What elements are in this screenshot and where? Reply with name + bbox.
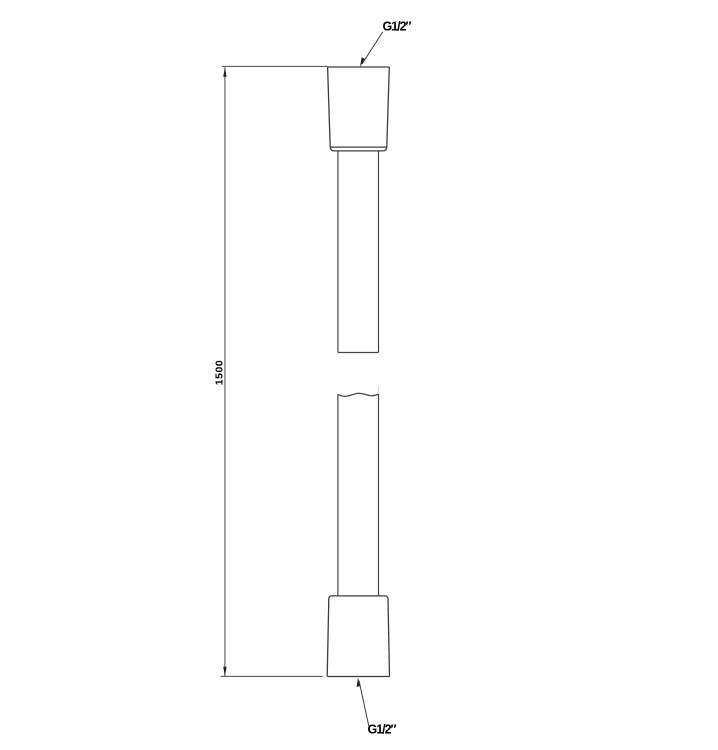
- svg-text:G1/2″: G1/2″: [368, 723, 397, 737]
- svg-text:G1/2″: G1/2″: [383, 20, 412, 34]
- svg-text:1500: 1500: [214, 360, 226, 385]
